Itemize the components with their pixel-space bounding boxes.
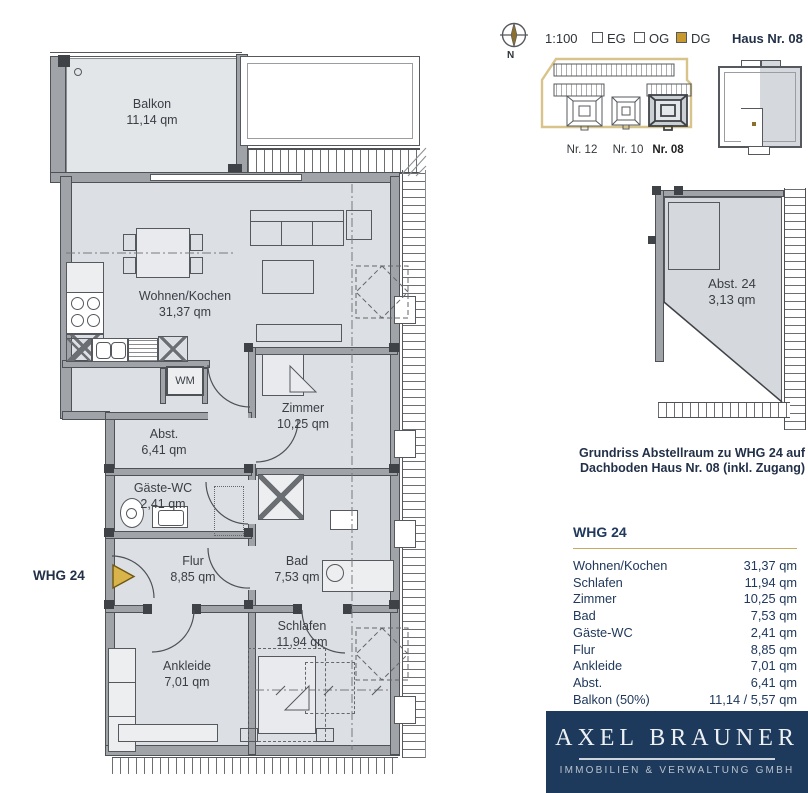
nightstand bbox=[316, 728, 334, 742]
storage-closet-outline bbox=[668, 202, 720, 270]
gold-divider bbox=[573, 548, 797, 549]
terrace-inner-frame bbox=[247, 63, 413, 139]
room-label-flur: Flur8,85 qm bbox=[170, 553, 215, 585]
balcony-top-edge bbox=[50, 52, 242, 57]
sideboard bbox=[256, 324, 342, 342]
dashed-zone bbox=[305, 662, 355, 714]
room-label-balkon: Balkon11,14 qm bbox=[126, 96, 177, 128]
company-name: AXEL BRAUNER bbox=[546, 725, 808, 752]
table-row: Ankleide7,01 qm bbox=[573, 658, 797, 675]
balcony-glass-door bbox=[150, 174, 302, 181]
legend-checkbox-eg bbox=[592, 32, 603, 43]
table-row: Wohnen/Kochen31,37 qm bbox=[573, 558, 797, 575]
kitchen-cabinet bbox=[66, 262, 104, 294]
sofa bbox=[250, 210, 344, 246]
wall-abst-wc bbox=[105, 468, 252, 476]
room-label-schlafen: Schlafen11,94 qm bbox=[276, 618, 327, 650]
door-gap bbox=[248, 480, 256, 524]
kitchen-unit bbox=[158, 336, 188, 362]
company-logo: AXEL BRAUNER IMMOBILIEN & VERWALTUNG GMB… bbox=[546, 711, 808, 793]
legend-checkbox-dg bbox=[676, 32, 687, 43]
legend-label-dg: DG bbox=[691, 31, 711, 46]
table-row: Flur8,85 qm bbox=[573, 642, 797, 659]
chair bbox=[123, 257, 136, 274]
house-number-label: Haus Nr. 08 bbox=[732, 31, 803, 46]
area-table: WHG 24 Wohnen/Kochen31,37 qm Schlafen11,… bbox=[573, 524, 797, 708]
legend-label-og: OG bbox=[649, 31, 669, 46]
bath-sink bbox=[330, 510, 358, 530]
table-row: Gäste-WC2,41 qm bbox=[573, 625, 797, 642]
door-gap bbox=[208, 412, 248, 420]
wall-pier bbox=[58, 55, 70, 67]
logo-divider bbox=[579, 758, 775, 760]
legend-label-eg: EG bbox=[607, 31, 626, 46]
roof-hatch-bottom bbox=[112, 757, 398, 774]
room-label-abst: Abst.6,41 qm bbox=[141, 426, 186, 458]
exterior-wall-jog bbox=[62, 411, 110, 420]
site-plan bbox=[536, 56, 694, 146]
floor-plan-page: N 1:100 EG OG DG Haus Nr. 08 bbox=[0, 0, 808, 793]
armchair bbox=[346, 210, 372, 240]
whg24-marker-label: WHG 24 bbox=[33, 568, 85, 583]
dormer-window bbox=[394, 296, 416, 324]
roof-hatch-right bbox=[402, 170, 426, 758]
balcony-left-wall bbox=[50, 56, 66, 178]
table-row: Bad7,53 qm bbox=[573, 608, 797, 625]
storage-room-label: Abst. 243,13 qm bbox=[708, 276, 756, 308]
room-label-bad: Bad7,53 qm bbox=[274, 553, 319, 585]
table-row: Abst.6,41 qm bbox=[573, 675, 797, 692]
storage-ladder-right bbox=[784, 188, 806, 430]
scale-label: 1:100 bbox=[545, 31, 578, 46]
room-label-ankleide: Ankleide7,01 qm bbox=[163, 658, 211, 690]
door-gap bbox=[150, 605, 194, 613]
zimmer-bed bbox=[262, 354, 304, 396]
area-table-title: WHG 24 bbox=[573, 524, 797, 540]
terrace-railing bbox=[248, 148, 420, 174]
company-subtitle: IMMOBILIEN & VERWALTUNG GMBH bbox=[546, 765, 808, 776]
door-gap bbox=[248, 546, 256, 590]
dormer-window bbox=[394, 696, 416, 724]
storage-caption: Grundriss Abstellraum zu WHG 24 auf Dach… bbox=[545, 446, 805, 476]
coffee-table bbox=[262, 260, 314, 294]
nightstand bbox=[240, 728, 258, 742]
compass-icon bbox=[497, 20, 531, 54]
washing-machine: WM bbox=[166, 366, 204, 396]
chair bbox=[190, 234, 203, 251]
dormer-window bbox=[394, 430, 416, 458]
room-label-zimmer: Zimmer10,25 qm bbox=[277, 400, 329, 432]
legend-checkbox-og bbox=[634, 32, 645, 43]
storage-ladder-bottom bbox=[658, 402, 790, 418]
table-row: Schlafen11,94 qm bbox=[573, 575, 797, 592]
door-gap bbox=[300, 605, 345, 613]
chair bbox=[123, 234, 136, 251]
dining-table bbox=[136, 228, 190, 278]
table-row: Zimmer10,25 qm bbox=[573, 591, 797, 608]
dormer-window bbox=[394, 520, 416, 548]
site-plan-label-nr12: Nr. 12 bbox=[567, 144, 598, 156]
compass-north-label: N bbox=[507, 50, 514, 61]
kitchen-drainer bbox=[128, 338, 158, 362]
chair bbox=[190, 257, 203, 274]
table-row: Balkon (50%)11,14 / 5,57 qm bbox=[573, 692, 797, 709]
site-plan-label-nr10: Nr. 10 bbox=[613, 144, 644, 156]
site-plan-label-nr08: Nr. 08 bbox=[652, 144, 683, 156]
shower bbox=[258, 474, 304, 520]
door-gap bbox=[248, 418, 256, 464]
room-label-wohnen-kochen: Wohnen/Kochen31,37 qm bbox=[139, 288, 231, 320]
storage-wall-left bbox=[655, 190, 664, 362]
room-label-gaeste-wc: Gäste-WC2,41 qm bbox=[134, 480, 192, 512]
niche-dotted bbox=[214, 486, 244, 536]
balcony-drain bbox=[74, 68, 82, 76]
wardrobe-low bbox=[118, 724, 218, 742]
kitchen-unit bbox=[66, 338, 92, 362]
